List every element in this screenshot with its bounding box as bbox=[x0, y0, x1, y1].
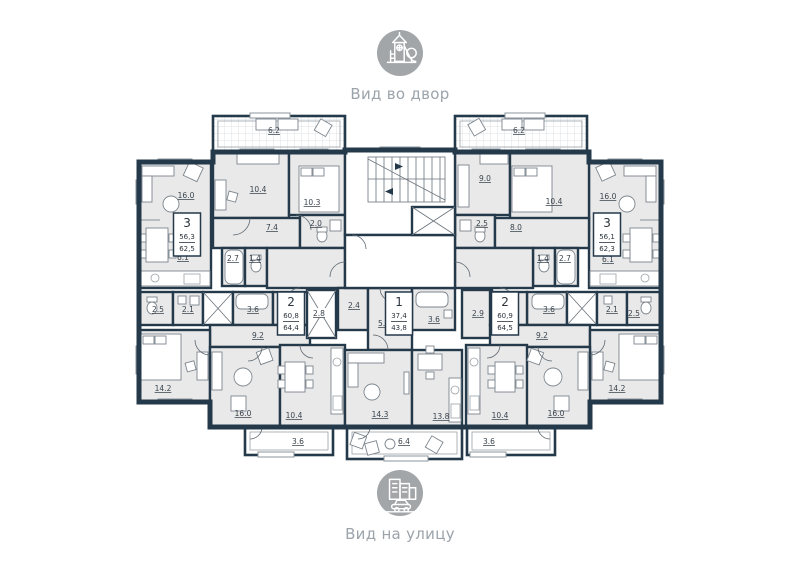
apartment-total-area: 43,8 bbox=[391, 324, 407, 332]
apartment-living-area: 60,9 bbox=[497, 312, 513, 320]
apartment-unit-3-left[interactable]: 3 56,3 62,5 bbox=[174, 213, 201, 256]
apartment-living-area: 60,8 bbox=[283, 312, 299, 320]
area-label: 2.5 bbox=[476, 219, 488, 228]
area-label: 10.4 bbox=[250, 185, 267, 194]
common-core bbox=[345, 150, 455, 288]
floorplan-page: 6.2 16.0 10.4 10.3 7.4 2.0 6.1 2.7 1.4 2… bbox=[0, 0, 800, 565]
area-label: 9.0 bbox=[479, 174, 491, 183]
area-label: 10.4 bbox=[546, 197, 563, 206]
area-label: 10.3 bbox=[304, 198, 321, 207]
apartment-rooms-count: 2 bbox=[287, 295, 295, 309]
apartment-living-area: 56,1 bbox=[599, 233, 615, 241]
room-hall bbox=[213, 218, 300, 248]
apartment-total-area: 62,3 bbox=[599, 245, 615, 253]
area-label: 1.4 bbox=[537, 254, 549, 263]
area-label: 2.4 bbox=[348, 301, 360, 310]
apartment-rooms-count: 1 bbox=[395, 295, 403, 309]
area-label: 2.5 bbox=[628, 309, 640, 318]
area-label: 6.4 bbox=[398, 437, 410, 446]
area-label: 2.5 bbox=[152, 305, 164, 314]
playground-icon bbox=[377, 30, 423, 76]
street-view-legend: Вид на улицу bbox=[0, 470, 800, 543]
area-label: 8.0 bbox=[510, 223, 522, 232]
apartment-living-area: 56,3 bbox=[179, 233, 195, 241]
courtyard-view-label: Вид во двор bbox=[0, 85, 800, 103]
apartment-total-area: 62,5 bbox=[179, 245, 195, 253]
apartment-unit-2-left[interactable]: 2 60,8 64,4 bbox=[278, 292, 305, 335]
corridor bbox=[345, 235, 455, 288]
area-label: 1.4 bbox=[249, 254, 261, 263]
area-label: 2.0 bbox=[310, 219, 322, 228]
apartment-total-area: 64,4 bbox=[283, 324, 299, 332]
area-label: 10.4 bbox=[286, 411, 303, 420]
area-label: 3.6 bbox=[483, 437, 495, 446]
apartment-rooms-count: 3 bbox=[603, 216, 611, 230]
area-label: 3.6 bbox=[543, 305, 555, 314]
area-label: 7.4 bbox=[266, 223, 278, 232]
apartment-total-area: 64,5 bbox=[497, 324, 513, 332]
area-label: 16.0 bbox=[548, 409, 565, 418]
area-label: 14.2 bbox=[155, 384, 172, 393]
apartment-unit-1-center[interactable]: 1 37,4 43,8 bbox=[386, 292, 413, 335]
apartment-unit-2-right[interactable]: 2 60,9 64,5 bbox=[492, 292, 519, 335]
area-label: 10.4 bbox=[492, 411, 509, 420]
balcony-bottom-right bbox=[467, 427, 555, 455]
courtyard-view-legend: Вид во двор bbox=[0, 30, 800, 103]
area-label: 9.2 bbox=[536, 331, 548, 340]
area-label: 3.6 bbox=[428, 315, 440, 324]
area-label: 2.8 bbox=[313, 309, 325, 318]
street-view-label: Вид на улицу bbox=[0, 525, 800, 543]
area-label: 2.7 bbox=[559, 254, 571, 263]
courtyard-view-button[interactable] bbox=[377, 30, 423, 76]
street-view-button[interactable] bbox=[377, 470, 423, 516]
area-label: 14.2 bbox=[609, 384, 626, 393]
area-label: 6.2 bbox=[268, 126, 280, 135]
area-label: 3.6 bbox=[292, 437, 304, 446]
area-label: 9.2 bbox=[252, 331, 264, 340]
area-label: 2.9 bbox=[472, 309, 484, 318]
apartment-rooms-count: 3 bbox=[183, 216, 191, 230]
apartment-unit-3-right[interactable]: 3 56,1 62,3 bbox=[594, 213, 621, 256]
area-label: 2.7 bbox=[227, 254, 239, 263]
area-label: 6.2 bbox=[513, 126, 525, 135]
area-label: 3.6 bbox=[247, 305, 259, 314]
area-label: 16.0 bbox=[235, 409, 252, 418]
area-label: 16.0 bbox=[178, 191, 195, 200]
balcony-bottom-left bbox=[245, 427, 333, 455]
city-street-icon bbox=[377, 470, 423, 516]
area-label: 14.3 bbox=[372, 410, 389, 419]
apartment-living-area: 37,4 bbox=[391, 312, 407, 320]
apartment-rooms-count: 2 bbox=[501, 295, 509, 309]
area-label: 2.1 bbox=[182, 305, 194, 314]
elevator-icon bbox=[412, 207, 455, 235]
area-label: 13.8 bbox=[433, 412, 450, 421]
area-label: 2.1 bbox=[606, 305, 618, 314]
area-label: 16.0 bbox=[600, 192, 617, 201]
